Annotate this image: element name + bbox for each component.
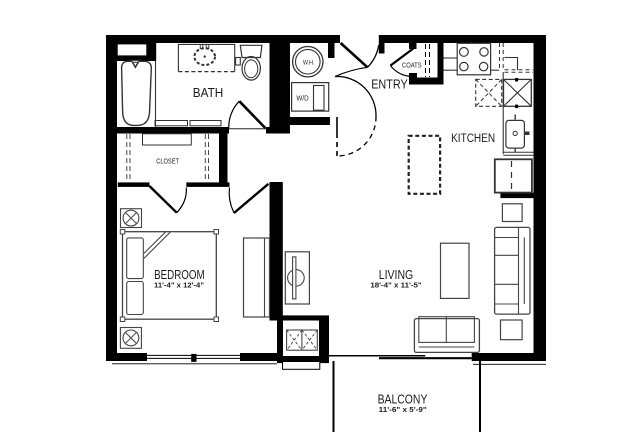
svg-text:ENTRY: ENTRY: [371, 77, 408, 92]
svg-text:11'-4" x 12'-4": 11'-4" x 12'-4": [154, 282, 204, 289]
svg-text:BALCONY: BALCONY: [378, 391, 428, 406]
svg-text:11'-6" x 5'-9": 11'-6" x 5'-9": [379, 407, 427, 414]
svg-text:W/D: W/D: [296, 96, 308, 103]
svg-text:CLOSET: CLOSET: [156, 157, 179, 166]
svg-text:KITCHEN: KITCHEN: [451, 131, 495, 145]
svg-text:COATS: COATS: [402, 63, 422, 70]
svg-text:18'-4" x 11'-5": 18'-4" x 11'-5": [370, 282, 421, 289]
svg-text:BATH: BATH: [193, 85, 224, 100]
svg-text:W.H.: W.H.: [303, 60, 315, 67]
svg-text:LIVING: LIVING: [379, 267, 414, 282]
svg-text:BEDROOM: BEDROOM: [154, 268, 205, 282]
